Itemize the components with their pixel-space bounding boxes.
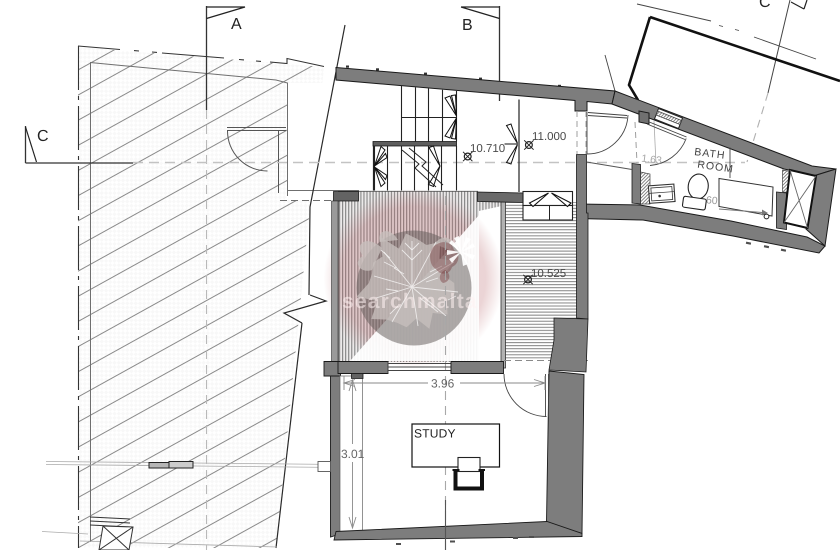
svg-text:STUDY: STUDY: [414, 427, 456, 441]
svg-text:C: C: [37, 128, 49, 145]
svg-text:searchmalta: searchmalta: [342, 290, 478, 313]
svg-text:11.000: 11.000: [532, 131, 566, 143]
svg-text:3.01: 3.01: [341, 447, 365, 461]
svg-text:3.96: 3.96: [431, 377, 455, 391]
svg-text:B: B: [462, 17, 473, 34]
svg-text:1.63: 1.63: [641, 153, 663, 167]
svg-text:A: A: [231, 16, 242, 33]
svg-text:C: C: [759, 0, 771, 11]
svg-text:10.525: 10.525: [531, 268, 566, 280]
svg-text:10.710: 10.710: [470, 143, 505, 155]
